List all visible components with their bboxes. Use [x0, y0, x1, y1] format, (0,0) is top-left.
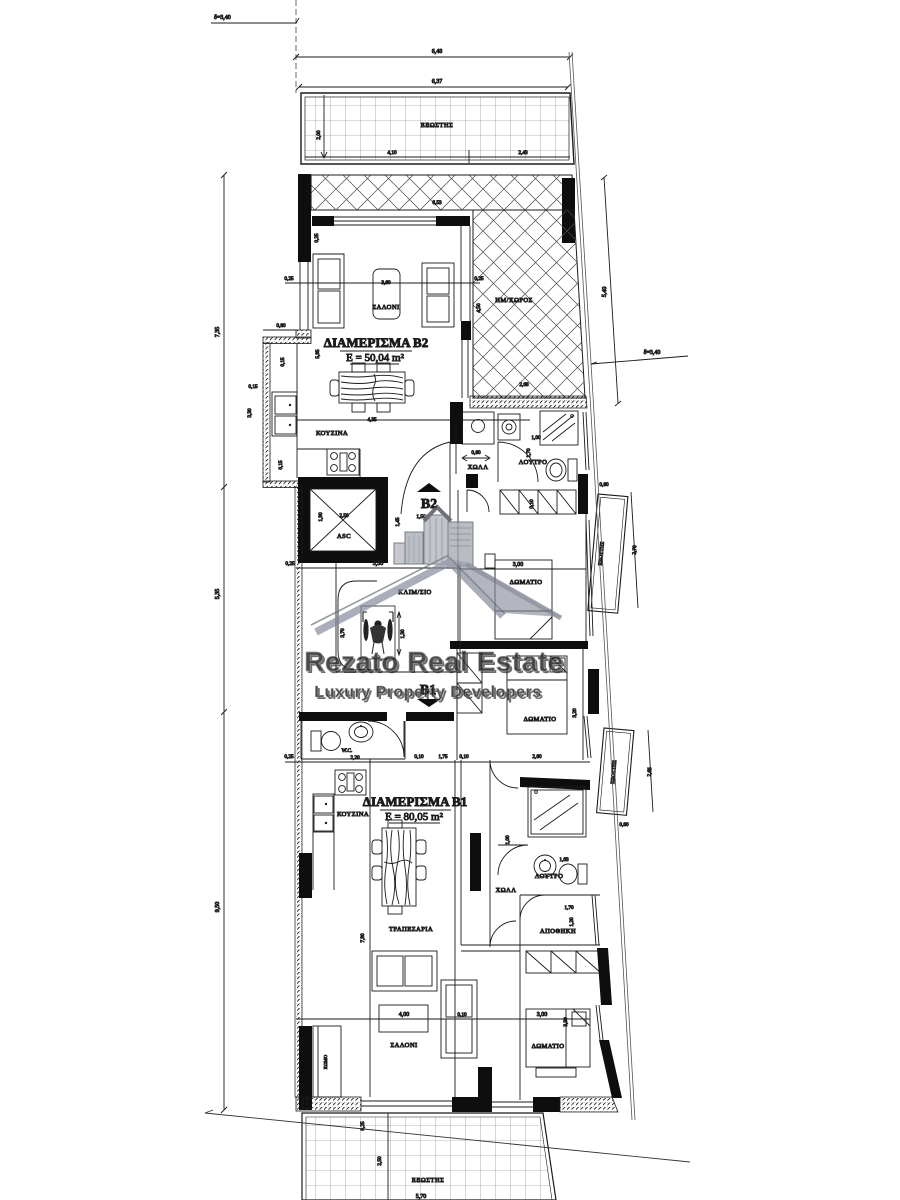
svg-text:3,70: 3,70: [340, 628, 346, 638]
svg-text:4,10: 4,10: [387, 150, 397, 156]
svg-text:0,10: 0,10: [529, 499, 535, 509]
svg-text:ΧΩΛΛ: ΧΩΛΛ: [496, 887, 517, 894]
svg-text:2,50: 2,50: [377, 1156, 383, 1166]
svg-text:ASC: ASC: [337, 533, 351, 540]
svg-text:0,80: 0,80: [276, 323, 286, 329]
svg-text:3,00: 3,00: [537, 1012, 548, 1018]
svg-text:6,37: 6,37: [432, 79, 443, 85]
svg-text:0,25: 0,25: [285, 561, 295, 567]
svg-text:1,75: 1,75: [438, 754, 448, 760]
svg-text:0,25: 0,25: [314, 233, 320, 243]
svg-text:E = 80,05 m²: E = 80,05 m²: [385, 811, 443, 823]
svg-text:0,80: 0,80: [599, 482, 609, 488]
svg-text:E = 50,04 m²: E = 50,04 m²: [346, 352, 404, 364]
svg-text:1,45: 1,45: [395, 517, 401, 527]
svg-text:0,15: 0,15: [280, 357, 286, 367]
svg-text:ΛΟΥΤΡΟ: ΛΟΥΤΡΟ: [535, 873, 564, 880]
svg-text:1,63: 1,63: [559, 857, 569, 863]
svg-text:4,00: 4,00: [399, 1012, 410, 1018]
svg-text:0,10: 0,10: [459, 754, 469, 760]
svg-text:9,50: 9,50: [215, 902, 221, 913]
svg-text:0,15: 0,15: [278, 460, 284, 470]
svg-text:6,48: 6,48: [432, 49, 443, 55]
svg-text:0,25: 0,25: [284, 754, 294, 760]
svg-text:ΔΙΑΜΕΡΙΣΜΑ Β1: ΔΙΑΜΕΡΙΣΜΑ Β1: [363, 794, 467, 809]
svg-text:ΕΞΩΣΤΗΣ: ΕΞΩΣΤΗΣ: [412, 1177, 444, 1184]
svg-text:7,90: 7,90: [360, 933, 366, 943]
svg-text:ΧΩΛΛ: ΧΩΛΛ: [468, 464, 489, 471]
svg-text:2,50: 2,50: [339, 513, 349, 519]
svg-text:1,00: 1,00: [505, 835, 511, 845]
svg-text:3,30: 3,30: [373, 561, 384, 567]
svg-text:1,90: 1,90: [318, 512, 324, 522]
svg-text:ΚΟΥΖΙΝΑ: ΚΟΥΖΙΝΑ: [337, 811, 369, 818]
svg-text:ΣΑΛΟΝΙ: ΣΑΛΟΝΙ: [390, 1042, 417, 1049]
svg-text:0,10: 0,10: [414, 754, 424, 760]
svg-text:2,20: 2,20: [350, 755, 360, 761]
svg-text:ΚΩΜΟ: ΚΩΜΟ: [323, 1054, 328, 1069]
svg-text:ΔΩΜΑΤΙΟ: ΔΩΜΑΤΙΟ: [532, 1043, 565, 1050]
svg-text:0,80: 0,80: [471, 450, 481, 456]
svg-text:2,65: 2,65: [647, 767, 653, 777]
svg-text:δ=3,40: δ=3,40: [214, 15, 231, 21]
svg-text:3,00: 3,00: [513, 562, 524, 568]
svg-text:0,80: 0,80: [619, 822, 629, 828]
svg-text:W.C.: W.C.: [342, 748, 353, 754]
svg-text:5,40: 5,40: [602, 286, 609, 297]
svg-text:2,68: 2,68: [519, 382, 529, 388]
svg-text:ΤΡΑΠΕΖΑΡΙΑ: ΤΡΑΠΕΖΑΡΙΑ: [389, 926, 433, 933]
svg-text:3,30: 3,30: [247, 408, 253, 418]
svg-text:1,00: 1,00: [531, 435, 541, 441]
svg-text:2,70: 2,70: [632, 545, 638, 555]
svg-text:ΑΠΟΘΗΚΗ: ΑΠΟΘΗΚΗ: [540, 928, 576, 935]
svg-text:2,60: 2,60: [532, 754, 542, 760]
svg-text:7,35: 7,35: [215, 327, 221, 338]
svg-text:5,35: 5,35: [215, 589, 221, 600]
svg-text:3,20: 3,20: [572, 708, 578, 718]
svg-text:ΔΩΜΑΤΙΟ: ΔΩΜΑΤΙΟ: [524, 716, 557, 723]
svg-text:1,70: 1,70: [564, 905, 574, 911]
svg-text:0,25: 0,25: [474, 276, 484, 282]
svg-text:0,15: 0,15: [248, 384, 258, 390]
svg-text:ΕΞΩΣΤΗΣ: ΕΞΩΣΤΗΣ: [421, 122, 453, 129]
svg-text:5,95: 5,95: [315, 349, 321, 359]
svg-text:Luxury Property Developers: Luxury Property Developers: [314, 684, 541, 701]
svg-text:5,70: 5,70: [416, 1194, 427, 1200]
svg-text:0,25: 0,25: [284, 276, 294, 282]
svg-text:1,30: 1,30: [400, 629, 406, 639]
svg-text:δ=3,40: δ=3,40: [644, 350, 661, 356]
svg-text:ΚΟΥΖΙΝΑ: ΚΟΥΖΙΝΑ: [316, 430, 348, 437]
svg-text:6,53: 6,53: [432, 200, 442, 206]
svg-text:ΣΑΛΟΝΙ: ΣΑΛΟΝΙ: [372, 304, 399, 311]
svg-text:ΗΜ/ΧΩΡΟΣ: ΗΜ/ΧΩΡΟΣ: [495, 297, 533, 304]
svg-text:1,20: 1,20: [569, 917, 575, 927]
svg-text:0,10: 0,10: [457, 1012, 467, 1018]
svg-text:ΔΩΜΑΤΙΟ: ΔΩΜΑΤΙΟ: [510, 579, 543, 586]
svg-text:3,30: 3,30: [563, 1017, 569, 1027]
svg-text:2,00: 2,00: [316, 130, 322, 140]
svg-text:2,43: 2,43: [518, 150, 528, 156]
svg-text:ΔΙΑΜΕΡΙΣΜΑ Β2: ΔΙΑΜΕΡΙΣΜΑ Β2: [324, 335, 428, 350]
svg-text:4,50: 4,50: [476, 303, 482, 313]
svg-text:Rezato Real Estate: Rezato Real Estate: [304, 646, 564, 677]
